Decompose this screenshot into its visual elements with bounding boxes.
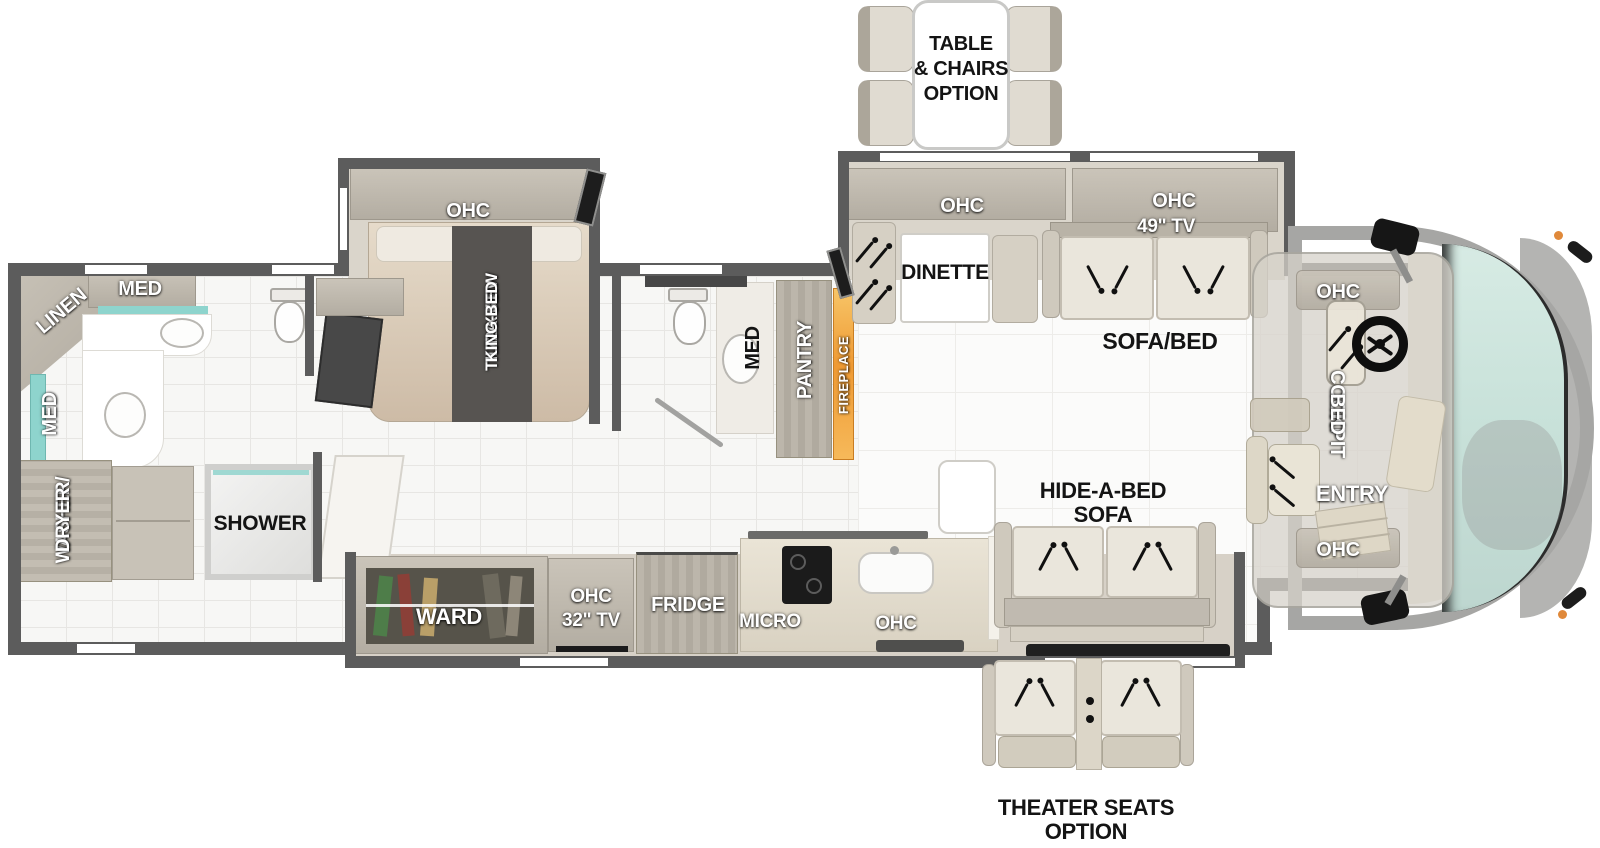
seatbelt — [1274, 460, 1296, 479]
theater-label-1: THEATER SEATS — [986, 795, 1186, 821]
stitch-mark — [1114, 265, 1129, 289]
rv-floorplan: TABLE & CHAIRS OPTION OHC 72 X 80 TILT-A… — [0, 0, 1600, 848]
bath-drawer-line — [116, 520, 190, 522]
stitch-mark — [1120, 683, 1135, 707]
stitch-mark — [1182, 265, 1197, 289]
cockpit-line2: BED — [1325, 393, 1349, 434]
ward-label: WARD — [399, 604, 499, 630]
dinette-bench-right — [992, 235, 1038, 323]
seatbelt — [869, 247, 888, 269]
bedroom-tv — [315, 312, 384, 408]
shower-label: SHOWER — [210, 512, 310, 536]
table-chairs-label-2: & CHAIRS — [911, 58, 1011, 81]
fireplace-label: FIREPLACE — [824, 305, 864, 445]
stitch-mark — [1158, 547, 1173, 571]
toilet-mid-bowl — [673, 301, 706, 345]
window-strip — [77, 644, 135, 653]
bath-drawers — [112, 466, 194, 580]
theater-seat-base — [1102, 736, 1180, 768]
counter-peninsula — [938, 460, 996, 534]
option-chair — [1006, 80, 1062, 146]
step-line — [1318, 517, 1388, 529]
table-chairs-label-3: OPTION — [911, 83, 1011, 106]
floor-vent — [876, 640, 964, 652]
sink-1 — [160, 318, 204, 348]
theater-seat — [994, 660, 1076, 736]
kitchen-slide-wall-left — [345, 552, 356, 668]
hideabed-cushion — [1012, 526, 1104, 598]
seatbelt — [855, 241, 874, 263]
stitch-mark — [1086, 265, 1101, 289]
seatbelt — [1328, 330, 1347, 352]
pantry-label: PANTRY — [785, 300, 825, 420]
tv32-screen — [556, 646, 628, 652]
wall-bottom-rear — [8, 642, 353, 655]
burner — [806, 578, 822, 594]
micro-label: MICRO — [730, 611, 810, 633]
window-strip — [1090, 153, 1258, 161]
marker-light — [1558, 610, 1567, 619]
cab-ohc-top-label: OHC — [1298, 281, 1378, 304]
toilet-rear-tank — [270, 288, 308, 302]
burner — [790, 554, 806, 570]
counter-edge — [748, 531, 928, 539]
kitchen-slide-wall-right — [1234, 552, 1245, 668]
theater-arm-right — [1180, 664, 1194, 766]
window-strip — [640, 265, 722, 274]
mid-med-label: MED — [733, 308, 773, 388]
marker-light — [1554, 231, 1563, 240]
stitch-mark — [1210, 265, 1225, 289]
fridge-label: FRIDGE — [638, 594, 738, 617]
dinette-label: DINETTE — [895, 261, 995, 285]
wall-stub-shower — [313, 452, 322, 582]
hideabed-back — [1004, 598, 1210, 626]
passenger-console — [1250, 398, 1310, 432]
med-top-label: MED — [100, 278, 180, 301]
theater-seat — [1100, 660, 1182, 736]
stitch-mark — [1064, 547, 1079, 571]
shower-glass-accent — [213, 470, 309, 475]
stitch-mark — [1014, 683, 1029, 707]
sofa-bed-arm-left — [1042, 230, 1060, 318]
bedroom-ohc-label: OHC — [428, 200, 508, 223]
entry-label: ENTRY — [1302, 481, 1402, 507]
seatbelt — [855, 283, 874, 305]
med-side-label: MED — [30, 364, 70, 464]
sofa-bed-cushion — [1060, 236, 1154, 320]
tv32-label-1: OHC — [551, 586, 631, 608]
sofa-bed-label: SOFA/BED — [1090, 328, 1230, 355]
washer-dryer-label: WASHER/ DRYER — [34, 460, 94, 580]
tv49-size-label: 49" TV — [1126, 216, 1206, 238]
faucet — [890, 546, 899, 555]
window-strip — [340, 188, 347, 250]
window-strip — [272, 265, 334, 274]
stitch-mark — [1040, 683, 1055, 707]
seatbelt — [869, 289, 888, 311]
passenger-seat-back — [1246, 436, 1268, 524]
tv32-label-2: 32" TV — [551, 610, 631, 632]
theater-label-2: OPTION — [986, 819, 1186, 845]
hideabed-label-2: SOFA — [1033, 502, 1173, 528]
bedroom-tv-wall-cabinet — [316, 278, 404, 316]
king-bed-label: 72 X 80 TILT-A-VIEW KING BED — [461, 237, 523, 407]
kitchen-sink — [858, 552, 934, 594]
sofa-bed-cushion — [1156, 236, 1250, 320]
tv49-ohc-label: OHC — [1134, 190, 1214, 213]
seatbelt — [1274, 488, 1296, 507]
king-slide-wall-top — [338, 158, 600, 169]
wall-stub-tv — [305, 276, 314, 376]
bedroom-wall-right — [589, 276, 600, 424]
stitch-mark — [1132, 547, 1147, 571]
toilet-mid-tank — [668, 288, 708, 302]
hideabed-cushion — [1106, 526, 1198, 598]
wall-stub-midbath — [612, 276, 621, 431]
theater-seat-base — [998, 736, 1076, 768]
window-strip — [520, 658, 608, 666]
windshield-shade — [1462, 420, 1562, 550]
cockpit-bed-label: COCKPIT BED — [1307, 354, 1367, 474]
cupholder — [1086, 715, 1094, 723]
wall-left-rear — [8, 263, 21, 655]
toilet-rear-bowl — [274, 301, 305, 343]
hideabed-label-1: HIDE-A-BED — [1033, 478, 1173, 504]
cupholder — [1086, 697, 1094, 705]
stitch-mark — [1146, 683, 1161, 707]
king-bed-line3: KING BED — [482, 282, 502, 363]
dinette-ohc-label: OHC — [922, 195, 1002, 218]
window-strip — [880, 153, 1070, 161]
table-chairs-label-1: TABLE — [911, 33, 1011, 56]
kitchen-ohc-label: OHC — [856, 613, 936, 635]
cab-ohc-bottom-label: OHC — [1298, 539, 1378, 562]
stitch-mark — [1038, 547, 1053, 571]
hideabed-skirt — [1010, 626, 1204, 642]
cab-trim-top — [1565, 239, 1594, 266]
theater-console — [1076, 658, 1102, 770]
option-chair — [858, 80, 914, 146]
stove — [782, 546, 832, 604]
transom-dark — [645, 276, 747, 287]
washer-line2: DRYER — [53, 488, 75, 552]
option-chair — [858, 6, 914, 72]
option-chair — [1006, 6, 1062, 72]
sink-2 — [104, 392, 146, 438]
